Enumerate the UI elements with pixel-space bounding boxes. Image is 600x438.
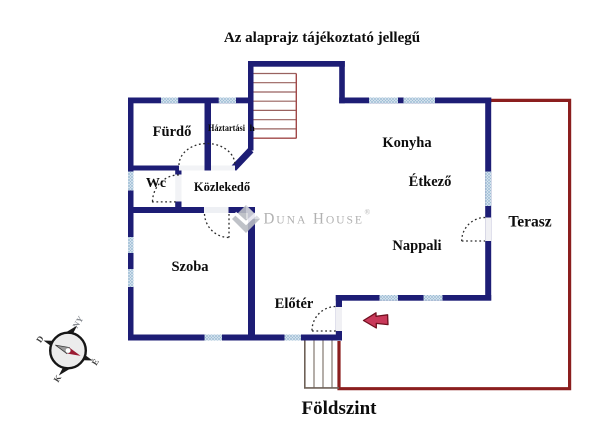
svg-text:Étkező: Étkező bbox=[409, 173, 452, 190]
svg-text:Terasz: Terasz bbox=[508, 214, 551, 231]
svg-text:Konyha: Konyha bbox=[382, 135, 432, 151]
svg-text:Közlekedő: Közlekedő bbox=[194, 180, 250, 194]
svg-text:Szoba: Szoba bbox=[171, 259, 209, 275]
svg-text:Földszint: Földszint bbox=[302, 398, 378, 419]
svg-text:Előtér: Előtér bbox=[275, 296, 314, 312]
svg-text:h: h bbox=[250, 124, 256, 134]
svg-text:Háztartási: Háztartási bbox=[208, 124, 245, 134]
svg-text:Nappali: Nappali bbox=[392, 238, 441, 254]
svg-text:DUNA HOUSE: DUNA HOUSE bbox=[264, 210, 365, 227]
svg-text:®: ® bbox=[365, 208, 371, 217]
svg-text:Az alaprajz tájékoztató jelleg: Az alaprajz tájékoztató jellegű bbox=[224, 30, 420, 46]
svg-text:Wc: Wc bbox=[146, 176, 166, 191]
svg-text:Fürdő: Fürdő bbox=[153, 124, 192, 140]
